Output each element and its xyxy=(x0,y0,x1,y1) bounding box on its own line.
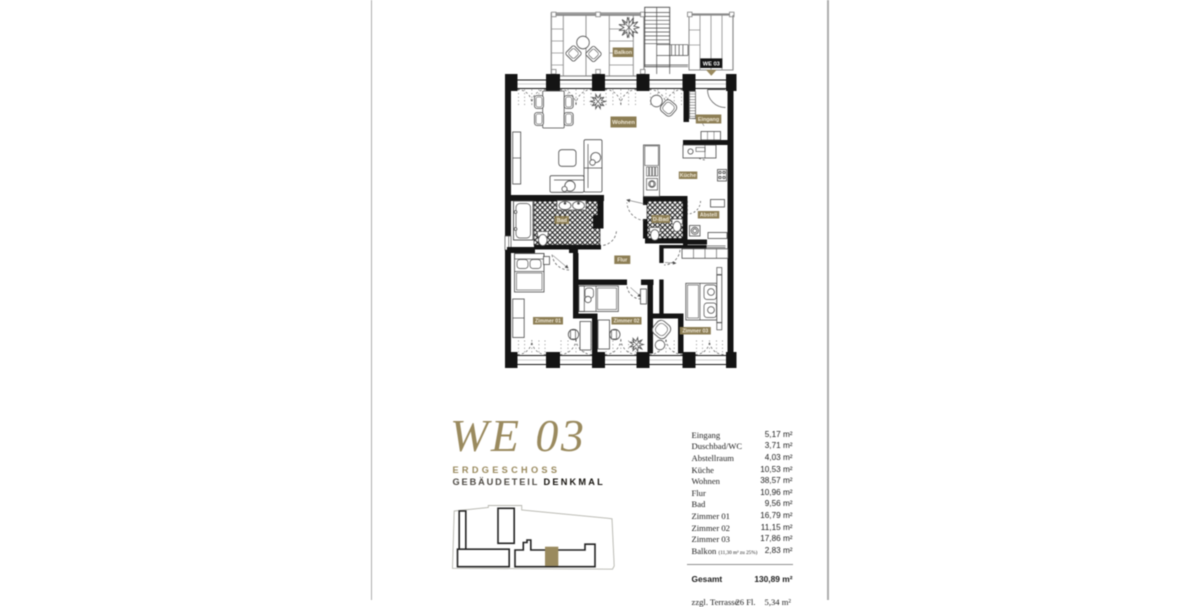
svg-text:Balkon: Balkon xyxy=(614,50,632,56)
svg-text:D-Bad: D-Bad xyxy=(653,217,669,223)
svg-text:Flur: Flur xyxy=(617,258,628,264)
svg-text:WE 03: WE 03 xyxy=(703,62,720,68)
svg-text:Eingang: Eingang xyxy=(698,117,719,123)
svg-text:Küche: Küche xyxy=(680,173,696,179)
svg-text:Abstell: Abstell xyxy=(700,213,718,219)
svg-text:Zimmer 01: Zimmer 01 xyxy=(535,319,561,325)
svg-text:Zimmer 03: Zimmer 03 xyxy=(682,329,708,335)
svg-text:Zimmer 02: Zimmer 02 xyxy=(614,319,640,325)
svg-text:Bad: Bad xyxy=(557,218,567,224)
svg-text:Wohnen: Wohnen xyxy=(612,120,635,126)
